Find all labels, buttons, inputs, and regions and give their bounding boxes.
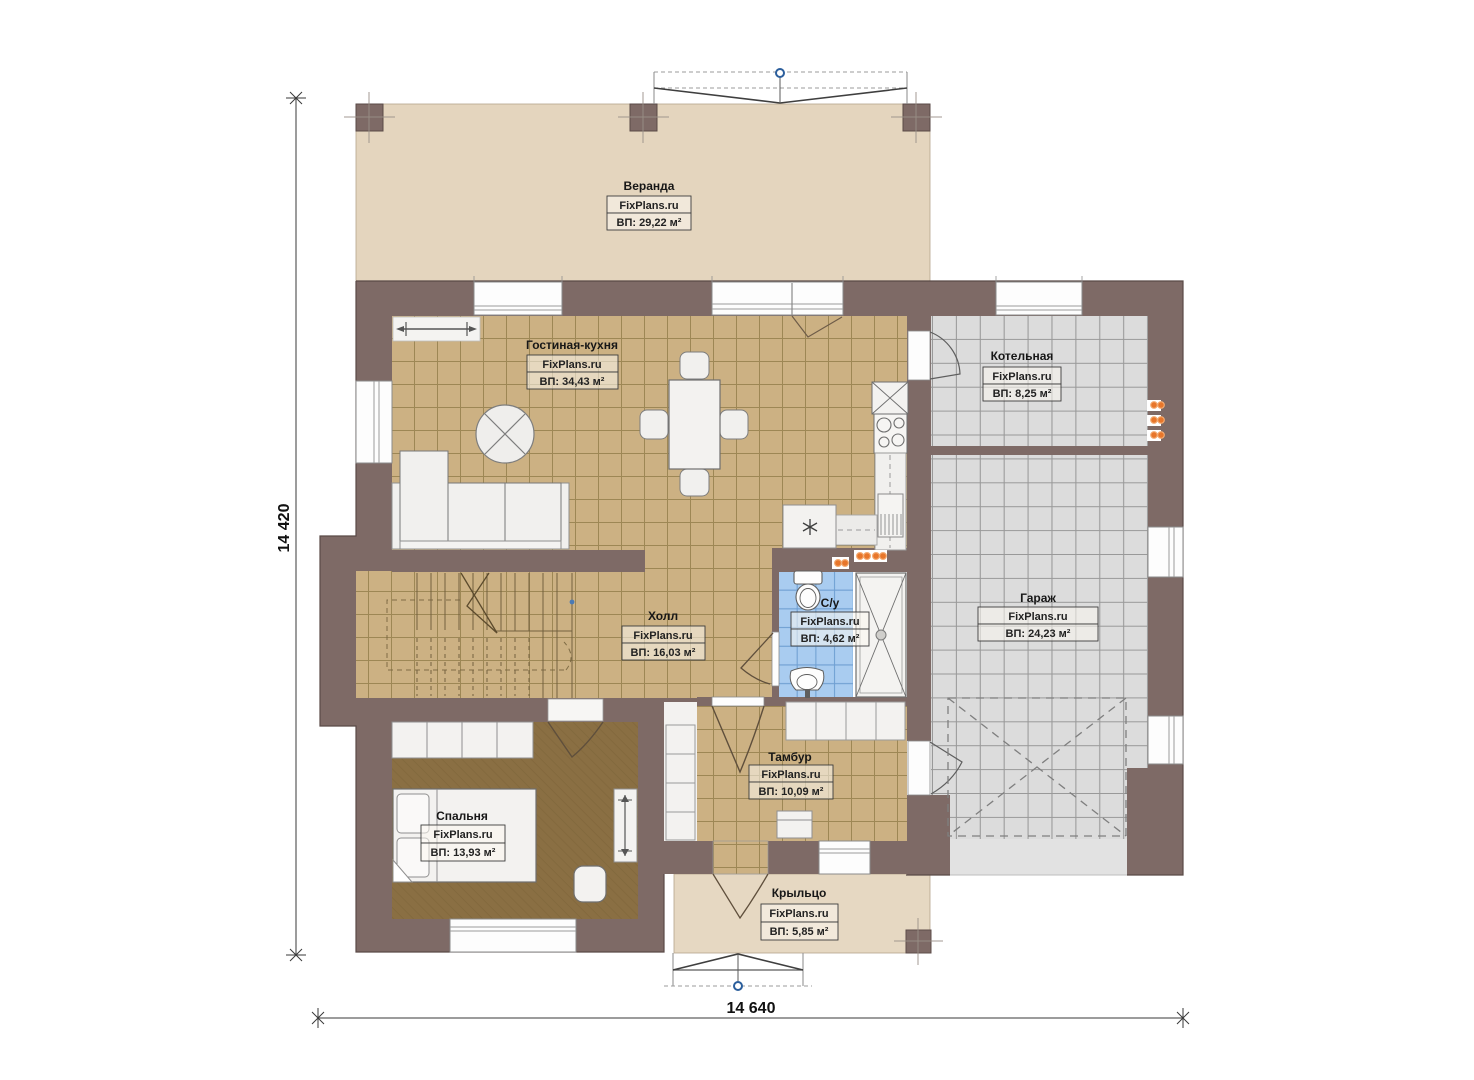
svg-text:Крыльцо: Крыльцо [772,886,827,900]
svg-text:Веранда: Веранда [624,179,675,193]
svg-text:Гостиная-кухня: Гостиная-кухня [526,338,618,352]
svg-text:Тамбур: Тамбур [768,750,812,764]
svg-text:FixPlans.ru: FixPlans.ru [992,371,1051,383]
svg-text:Спальня: Спальня [436,809,488,823]
svg-text:FixPlans.ru: FixPlans.ru [800,616,859,628]
svg-text:Гараж: Гараж [1020,591,1056,605]
svg-text:ВП: 5,85 м²: ВП: 5,85 м² [770,926,829,938]
svg-text:С/у: С/у [821,596,840,610]
svg-text:Котельная: Котельная [991,349,1054,363]
svg-text:FixPlans.ru: FixPlans.ru [761,769,820,781]
svg-text:FixPlans.ru: FixPlans.ru [619,200,678,212]
svg-text:ВП: 16,03 м²: ВП: 16,03 м² [631,647,696,659]
svg-text:ВП: 13,93 м²: ВП: 13,93 м² [431,847,496,859]
svg-text:ВП: 24,23 м²: ВП: 24,23 м² [1006,628,1071,640]
svg-text:FixPlans.ru: FixPlans.ru [1008,611,1067,623]
svg-text:FixPlans.ru: FixPlans.ru [433,829,492,841]
svg-text:14 640: 14 640 [727,1000,776,1017]
svg-text:ВП: 10,09 м²: ВП: 10,09 м² [759,786,824,798]
svg-text:ВП: 8,25 м²: ВП: 8,25 м² [993,388,1052,400]
svg-text:FixPlans.ru: FixPlans.ru [769,908,828,920]
svg-text:ВП: 4,62 м²: ВП: 4,62 м² [801,633,860,645]
svg-text:ВП: 34,43 м²: ВП: 34,43 м² [540,376,605,388]
svg-text:Холл: Холл [648,609,678,623]
svg-text:FixPlans.ru: FixPlans.ru [542,359,601,371]
svg-text:14 420: 14 420 [276,503,293,552]
svg-text:FixPlans.ru: FixPlans.ru [633,630,692,642]
svg-text:ВП: 29,22 м²: ВП: 29,22 м² [617,217,682,229]
